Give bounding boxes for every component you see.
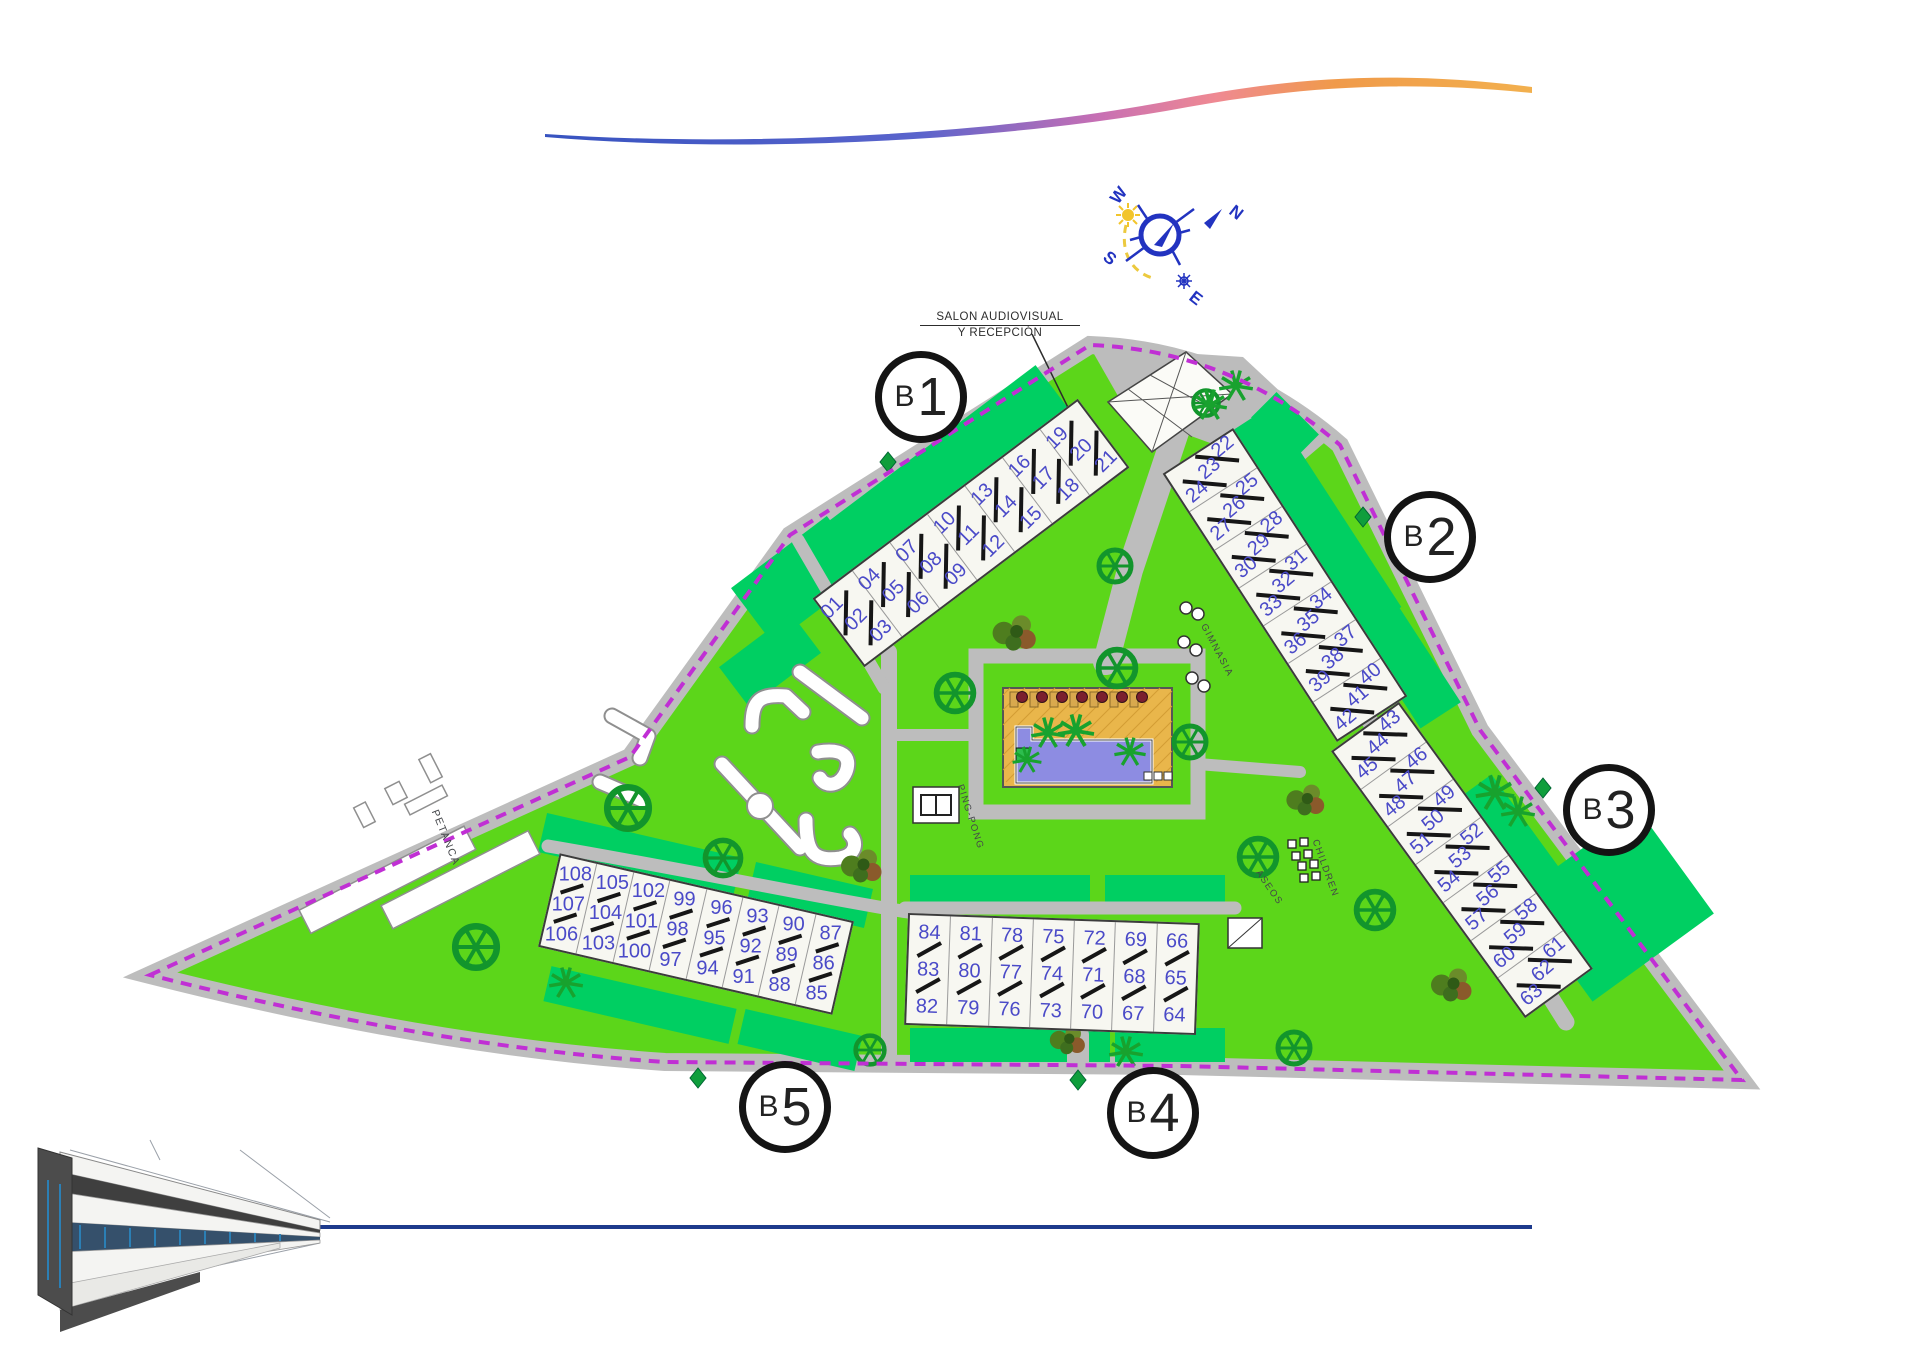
unit-group: 848382 [906, 915, 951, 1024]
unit-number: 85 [805, 984, 827, 1004]
block-prefix: B [1582, 793, 1603, 827]
unit-group: 727170 [1071, 921, 1116, 1030]
unit-number: 88 [769, 975, 791, 995]
unit-group: 787776 [989, 918, 1034, 1027]
unit-number: 75 [1042, 927, 1065, 948]
block-badge-b1: B1 [875, 351, 967, 443]
reception-label-line2: Y RECEPCIÓN [958, 327, 1043, 339]
unit-number: 70 [1080, 1002, 1103, 1023]
unit-divider [1081, 948, 1106, 964]
block-prefix: B [758, 1090, 779, 1124]
unit-group: 666564 [1154, 924, 1198, 1033]
block-badge-b2: B2 [1384, 491, 1476, 583]
unit-number: 79 [957, 997, 980, 1018]
unit-number: 96 [710, 898, 732, 918]
block-b4-building: 8483828180797877767574737271706968676665… [904, 913, 1200, 1035]
unit-number: 74 [1041, 964, 1064, 985]
unit-number: 106 [545, 925, 578, 945]
unit-number: 80 [958, 961, 981, 982]
ping-pong-table-icon [913, 787, 959, 823]
block-number: 4 [1149, 1082, 1179, 1144]
site-plan-page: { "title": "Residential masterplan with … [0, 0, 1920, 1357]
unit-number: 97 [660, 950, 682, 970]
unit-number: 73 [1039, 1000, 1062, 1021]
header-swoosh [545, 78, 1532, 145]
unit-number: 84 [918, 923, 941, 944]
unit-number: 102 [632, 881, 665, 901]
site-plan-drawing: N W S E [0, 0, 1920, 1357]
unit-number: 65 [1164, 968, 1187, 989]
block-badge-b3: B3 [1563, 764, 1655, 856]
compass-south-label: S [1100, 247, 1121, 269]
unit-number: 81 [959, 924, 982, 945]
compass-north-label: N [1226, 201, 1247, 224]
star-icon [1176, 273, 1192, 289]
unit-number: 107 [552, 895, 585, 915]
unit-number: 93 [747, 906, 769, 926]
unit-number: 89 [776, 945, 798, 965]
unit-number: 78 [1001, 925, 1024, 946]
unit-number: 99 [674, 889, 696, 909]
unit-number: 67 [1122, 1003, 1145, 1024]
block-prefix: B [894, 380, 915, 414]
unit-divider [1123, 949, 1148, 965]
toilets-building [1228, 918, 1262, 948]
pool-area [1003, 688, 1172, 787]
reception-label: SALON AUDIOVISUAL Y RECEPCIÓN [920, 310, 1080, 341]
unit-divider [999, 945, 1024, 961]
unit-number: 92 [740, 937, 762, 957]
unit-number: 71 [1082, 965, 1105, 986]
unit-number: 100 [618, 942, 651, 962]
unit-number: 104 [588, 903, 621, 923]
unit-number: 91 [732, 967, 754, 987]
unit-number: 98 [667, 920, 689, 940]
reception-label-line1: SALON AUDIOVISUAL [920, 310, 1080, 326]
unit-group: 757473 [1030, 919, 1075, 1028]
unit-divider [958, 943, 983, 959]
block-number: 3 [1605, 779, 1635, 841]
unit-number: 105 [595, 873, 628, 893]
unit-divider [916, 942, 941, 958]
unit-number: 72 [1083, 928, 1106, 949]
block-prefix: B [1403, 520, 1424, 554]
compass-rose: N W S E [1100, 182, 1247, 309]
unit-number: 66 [1166, 931, 1189, 952]
unit-number: 108 [559, 864, 592, 884]
unit-number: 103 [581, 933, 614, 953]
block-badge-b5: B5 [739, 1061, 831, 1153]
block-number: 2 [1426, 506, 1456, 568]
footer-line [252, 1225, 1532, 1229]
unit-number: 101 [625, 911, 658, 931]
unit-number: 82 [915, 996, 938, 1017]
block-prefix: B [1126, 1096, 1147, 1130]
pool-side-squares [1144, 772, 1172, 780]
north-arrow [1204, 209, 1222, 229]
compass-east-label: E [1186, 287, 1207, 309]
unit-number: 90 [783, 915, 805, 935]
unit-number: 87 [819, 923, 841, 943]
unit-number: 64 [1163, 1005, 1186, 1026]
unit-number: 69 [1124, 930, 1147, 951]
block-number: 1 [917, 366, 947, 428]
unit-divider [1164, 951, 1189, 967]
unit-number: 76 [998, 999, 1021, 1020]
block-badge-b4: B4 [1107, 1067, 1199, 1159]
footer-logo-building [38, 1140, 1532, 1332]
unit-number: 94 [696, 959, 718, 979]
unit-divider [1040, 946, 1065, 962]
block-number: 5 [781, 1076, 811, 1138]
unit-number: 83 [917, 959, 940, 980]
unit-group: 696867 [1112, 922, 1157, 1031]
unit-group: 818079 [947, 916, 992, 1025]
